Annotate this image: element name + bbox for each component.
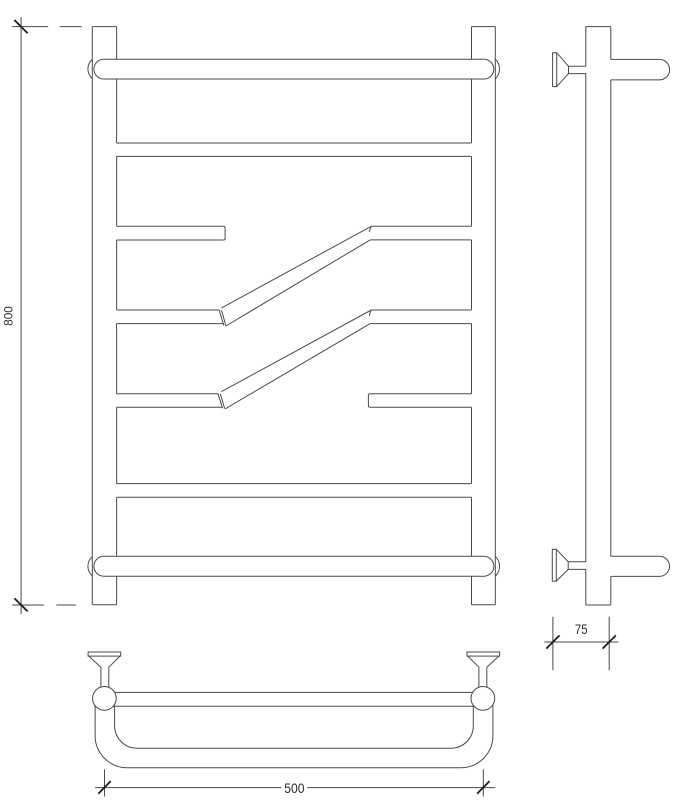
svg-text:800: 800: [2, 306, 16, 326]
svg-text:75: 75: [575, 621, 588, 637]
svg-text:500: 500: [284, 780, 304, 796]
